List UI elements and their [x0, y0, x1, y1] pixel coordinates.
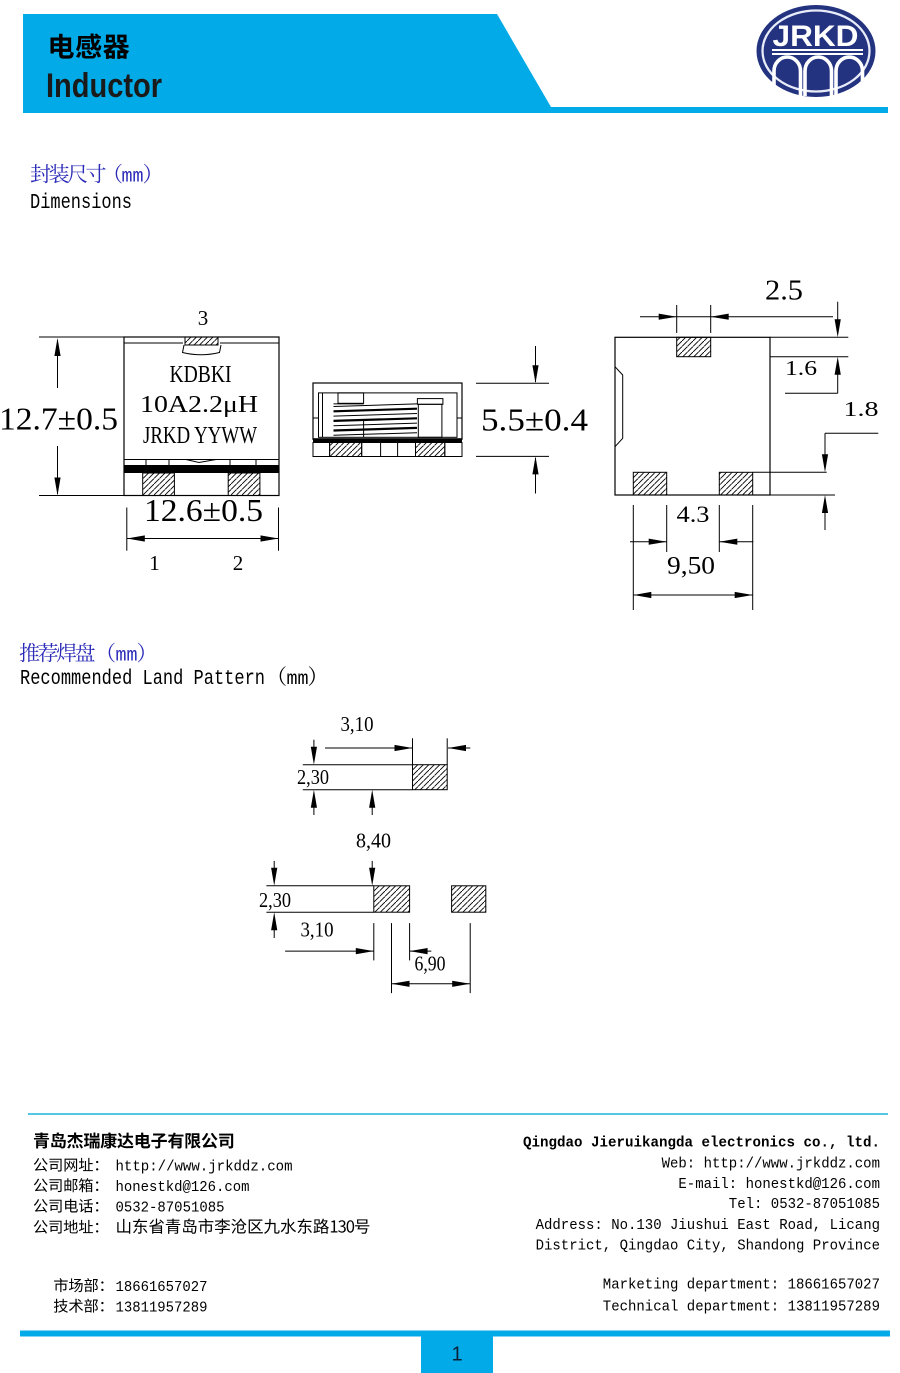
svg-text:2,30: 2,30: [259, 888, 291, 912]
svg-text:0532-87051085: 0532-87051085: [116, 1200, 225, 1217]
svg-text:E-mail: honestkd@126.com: E-mail: honestkd@126.com: [678, 1176, 880, 1193]
svg-text:Technical department: 13811957: Technical department: 13811957289: [603, 1299, 880, 1316]
svg-text:mm: mm: [122, 166, 144, 188]
svg-text:18661657027: 18661657027: [116, 1279, 208, 1296]
svg-text:Inductor: Inductor: [46, 67, 162, 105]
svg-text:1: 1: [149, 551, 160, 575]
svg-text:3,10: 3,10: [341, 712, 374, 736]
svg-text:Qingdao Jieruikangda electroni: Qingdao Jieruikangda electronics co., lt…: [523, 1135, 880, 1152]
svg-text:Marketing department: 18661657: Marketing department: 18661657027: [603, 1277, 880, 1294]
svg-text:KDBKI: KDBKI: [170, 362, 232, 388]
svg-text:9,50: 9,50: [667, 553, 715, 580]
svg-text:JRKD YYWW: JRKD YYWW: [143, 423, 257, 449]
svg-text:mm: mm: [287, 668, 309, 690]
svg-text:Address: No.130 Jiushui East R: Address: No.130 Jiushui East Road, Lican…: [536, 1217, 880, 1234]
svg-text:12.6±0.5: 12.6±0.5: [144, 492, 263, 528]
svg-text:Recommended Land Pattern: Recommended Land Pattern: [20, 668, 265, 691]
svg-text:honestkd@126.com: honestkd@126.com: [116, 1179, 250, 1196]
svg-text:2,30: 2,30: [297, 765, 329, 789]
svg-text:3,10: 3,10: [301, 918, 334, 942]
svg-text:2: 2: [233, 551, 244, 575]
svg-text:mm: mm: [116, 645, 138, 667]
svg-text:District, Qingdao City, Shando: District, Qingdao City, Shandong Provinc…: [536, 1238, 880, 1255]
svg-text:1.6: 1.6: [785, 356, 817, 380]
svg-text:JRKD: JRKD: [773, 20, 859, 53]
svg-text:13811957289: 13811957289: [116, 1300, 208, 1317]
svg-text:1.8: 1.8: [844, 397, 879, 421]
svg-text:Dimensions: Dimensions: [30, 192, 132, 215]
svg-text:3: 3: [198, 306, 209, 330]
svg-text:8,40: 8,40: [356, 829, 391, 853]
svg-text:Web: http://www.jrkddz.com: Web: http://www.jrkddz.com: [662, 1156, 880, 1173]
svg-text:2.5: 2.5: [765, 275, 803, 307]
svg-text:12.7±0.5: 12.7±0.5: [0, 401, 118, 437]
svg-text:10A2.2μH: 10A2.2μH: [140, 392, 258, 418]
svg-text:Tel: 0532-87051085: Tel: 0532-87051085: [729, 1196, 880, 1213]
svg-text:1: 1: [451, 1344, 462, 1366]
svg-text:5.5±0.4: 5.5±0.4: [481, 402, 588, 438]
svg-text:6,90: 6,90: [415, 952, 446, 976]
svg-text:http://www.jrkddz.com: http://www.jrkddz.com: [116, 1159, 293, 1176]
svg-text:4.3: 4.3: [677, 502, 710, 527]
